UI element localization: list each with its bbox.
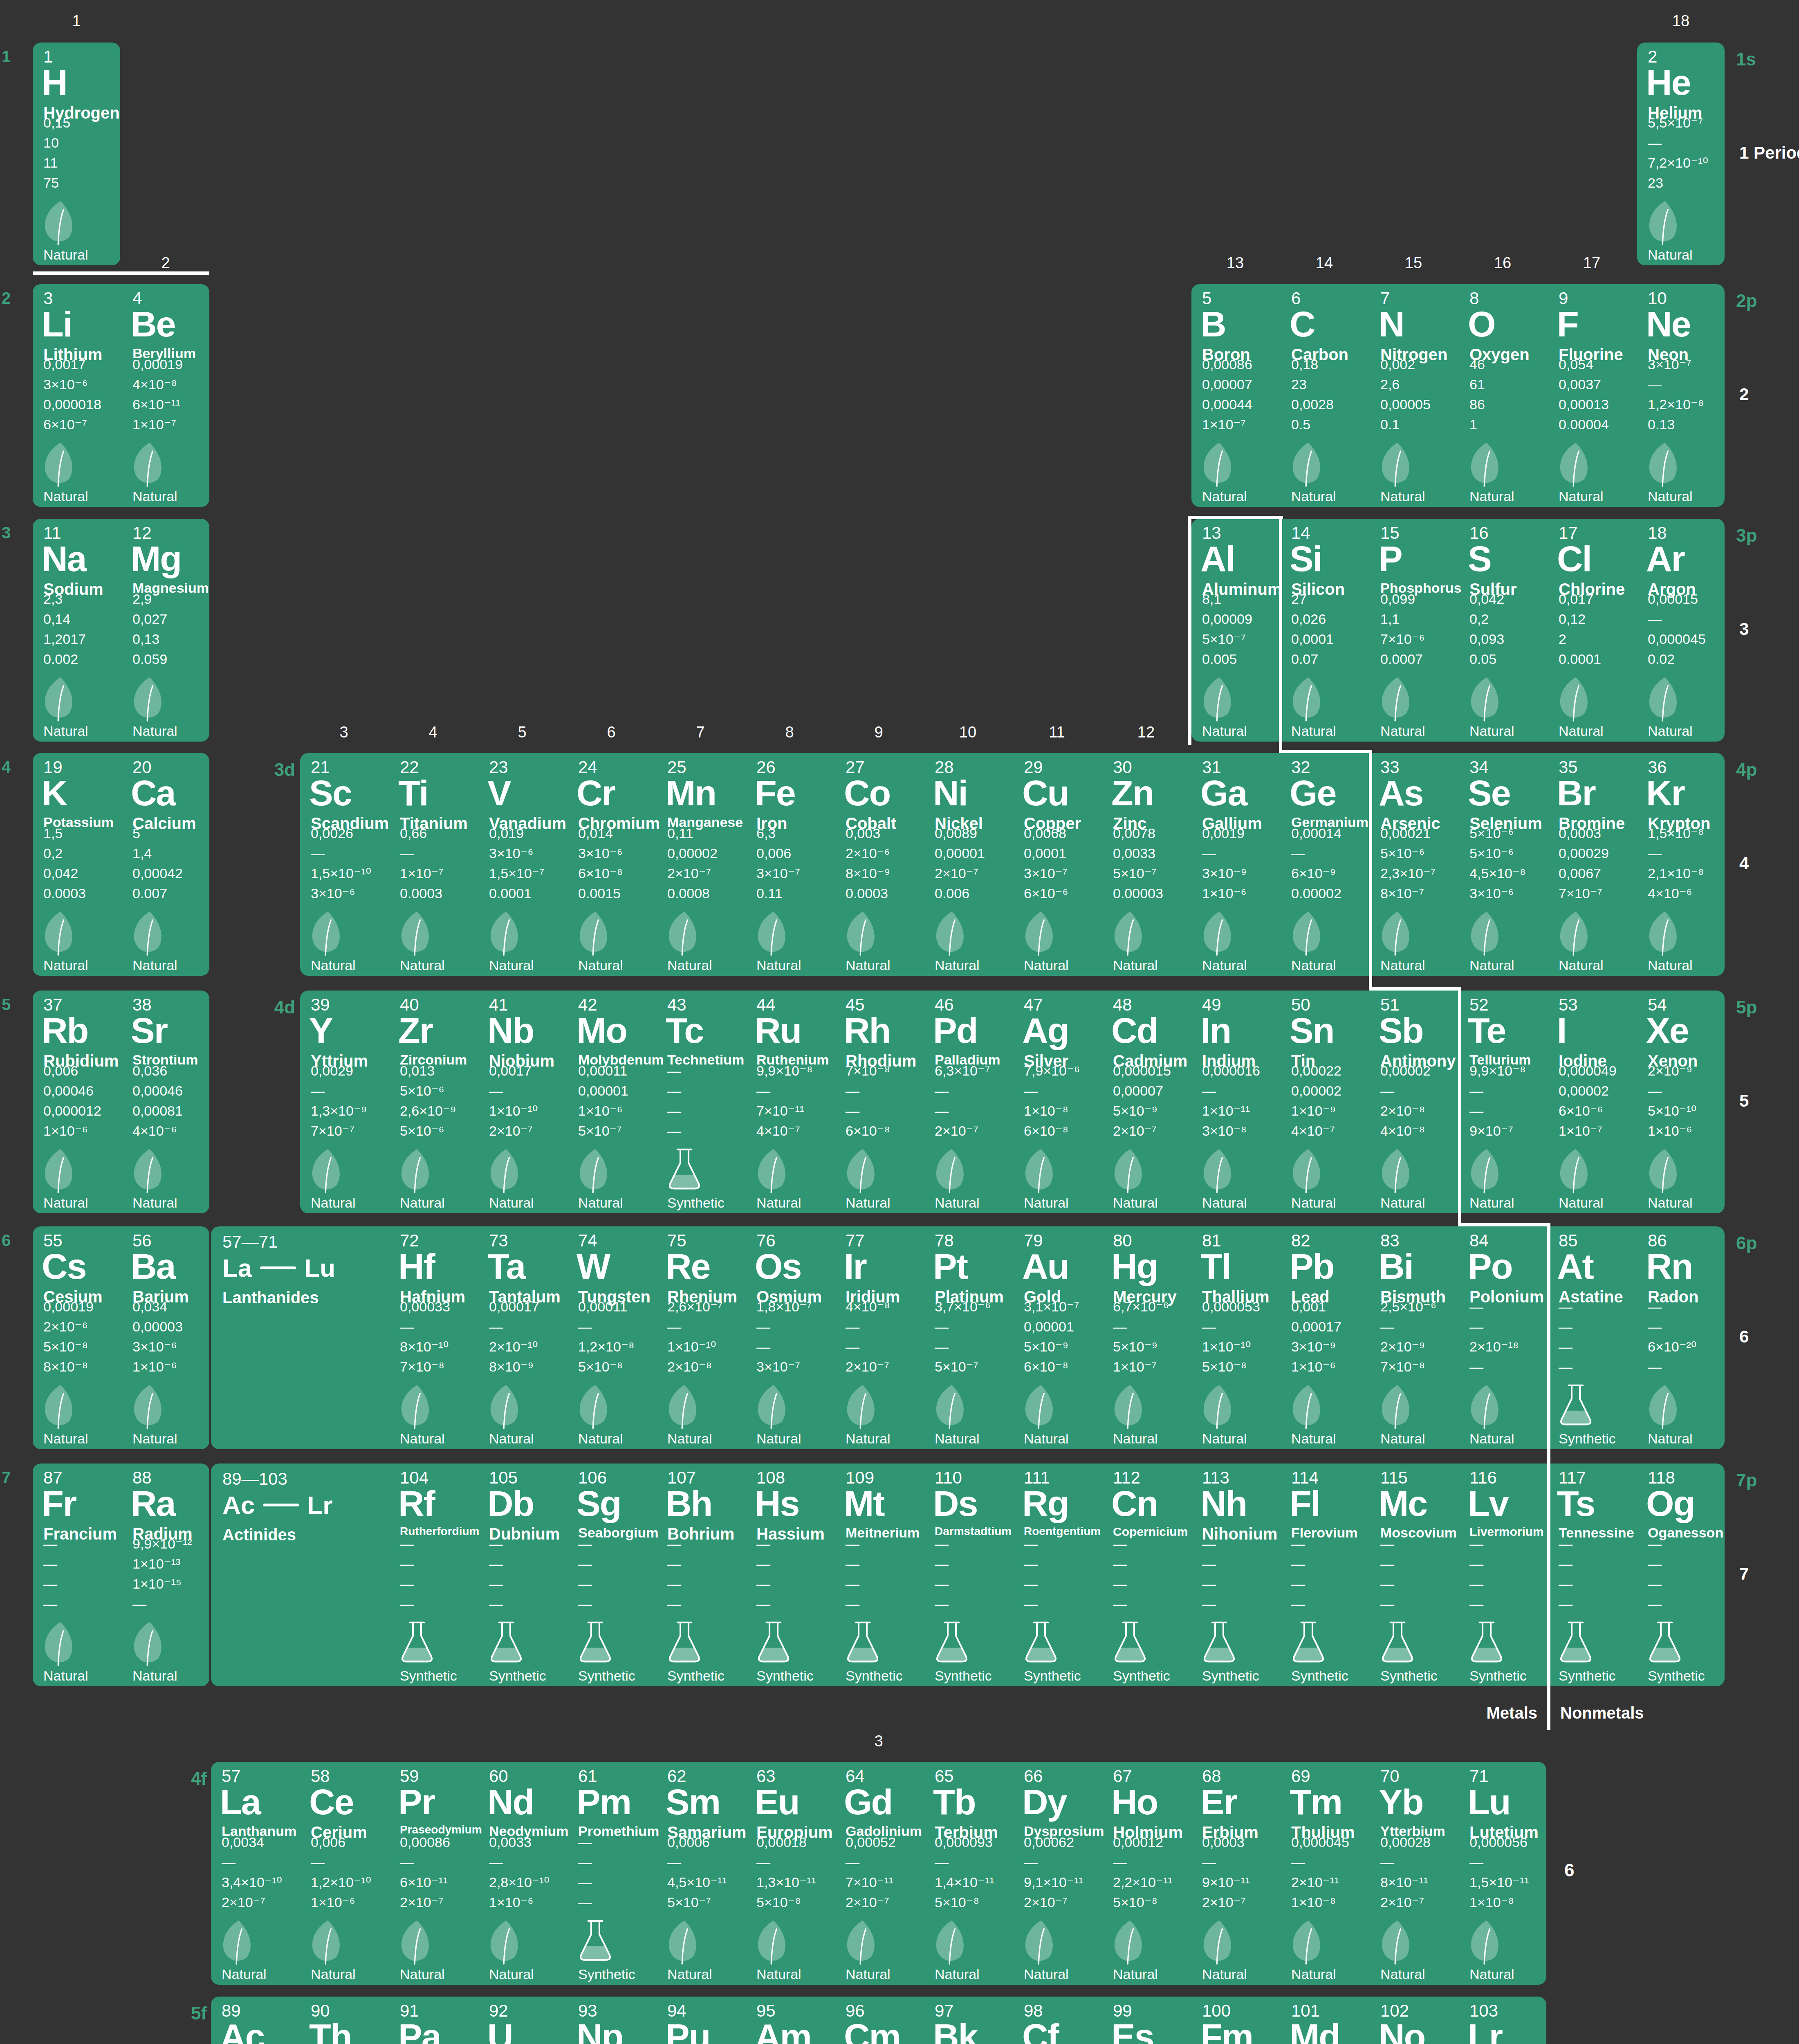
abundance-value: 5×10⁻⁸	[43, 1338, 88, 1355]
flask-icon	[1466, 1620, 1507, 1667]
leaf-icon	[1199, 1918, 1238, 1965]
element-symbol: Ra	[131, 1486, 175, 1522]
origin-label: Natural	[489, 1431, 534, 1447]
abundance-value: 9,1×10⁻¹¹	[1024, 1874, 1083, 1891]
leaf-icon	[40, 675, 79, 722]
leaf-icon	[1555, 440, 1595, 489]
leaf-icon	[1199, 1147, 1238, 1195]
orbital-label: 1s	[1736, 49, 1756, 69]
abundance-value: —	[935, 1318, 949, 1335]
element-cell: 56BaBarium0,0340,000033×10⁻⁶1×10⁻⁶Natura…	[122, 1226, 209, 1449]
leaf-icon	[575, 1147, 614, 1193]
element-symbol: Pt	[933, 1248, 967, 1284]
abundance-value: 2,6×10⁻⁹	[400, 1103, 456, 1119]
leaf-icon	[575, 909, 614, 956]
leaf-icon	[931, 909, 971, 956]
abundance-value: —	[1648, 1318, 1662, 1335]
abundance-value: —	[756, 1338, 770, 1355]
abundance-value: —	[43, 1535, 57, 1552]
element-symbol: He	[1646, 65, 1691, 101]
abundance-value: —	[1202, 845, 1216, 862]
leaf-icon	[129, 675, 168, 723]
abundance-value: 23	[1648, 175, 1663, 191]
element-symbol: Rb	[42, 1013, 88, 1049]
element-symbol: Mn	[666, 775, 716, 811]
element-symbol: Og	[1646, 1486, 1694, 1522]
origin-label: Natural	[935, 1966, 980, 1982]
abundance-value: —	[400, 845, 414, 862]
flask-icon	[1288, 1620, 1329, 1667]
abundance-value: 0,00017	[1291, 1318, 1341, 1335]
abundance-value: 2,3	[43, 591, 63, 607]
origin-label: Natural	[132, 1431, 177, 1447]
element-cell: 37RbRubidium0,0060,000460,0000121×10⁻⁶Na…	[33, 991, 120, 1213]
abundance-value: —	[1202, 1854, 1216, 1871]
abundance-value: 5×10⁻⁹	[1113, 1103, 1157, 1119]
abundance-value: 7,9×10⁻⁶	[1024, 1062, 1080, 1079]
periodic-table-poster: 1HHydrogen0,15101175Natural2HeHelium5,5×…	[0, 0, 1799, 2044]
abundance-value: 0,001	[1291, 1298, 1326, 1315]
abundance-value: 0,000093	[935, 1834, 993, 1851]
origin-label: Natural	[1469, 1966, 1514, 1982]
element-symbol: Hs	[755, 1486, 799, 1522]
abundance-value: 9×10⁻¹¹	[1202, 1874, 1250, 1891]
abundance-value: —	[1024, 1854, 1038, 1871]
abundance-value: 3,7×10⁻⁶	[935, 1298, 991, 1315]
leaf-icon	[1555, 675, 1595, 723]
metal-nonmetal-divider-line	[1279, 516, 1282, 753]
leaf-icon	[1199, 1383, 1238, 1431]
leaf-icon	[664, 1918, 703, 1966]
abundance-value: —	[489, 1535, 503, 1552]
abundance-value: —	[756, 1555, 770, 1572]
element-cell: 76OsOsmium1,8×10⁻⁷——3×10⁻⁷Natural	[746, 1226, 833, 1449]
series-from: La	[222, 1253, 252, 1282]
leaf-icon	[1466, 1383, 1505, 1431]
origin-label: Natural	[132, 723, 177, 739]
abundance-value: —	[1202, 1555, 1216, 1572]
abundance-value: —	[489, 1083, 503, 1099]
element-symbol: U	[487, 2019, 513, 2044]
abundance-value: 1×10⁻⁸	[1291, 1894, 1336, 1911]
leaf-icon	[486, 909, 525, 957]
origin-label: Natural	[578, 957, 623, 973]
abundance-value: —	[1648, 134, 1662, 151]
group-number-label: 17	[1548, 254, 1635, 272]
series-label: Actinides	[222, 1526, 296, 1544]
leaf-icon	[1466, 1147, 1505, 1195]
abundance-value: 0,11	[667, 825, 693, 842]
element-cell: 36KrKrypton1,5×10⁻⁸—2,1×10⁻⁸4×10⁻⁶Natura…	[1637, 753, 1725, 976]
element-cell: 2HeHelium5,5×10⁻⁷—7,2×10⁻¹⁰23Natural	[1637, 43, 1725, 265]
origin-label: Natural	[846, 957, 891, 973]
abundance-value: —	[1291, 1854, 1305, 1871]
abundance-value: —	[1559, 1576, 1572, 1592]
flask-icon	[1555, 1383, 1596, 1430]
abundance-value: 61	[1469, 376, 1485, 393]
abundance-value: 1×10⁻⁶	[1648, 1123, 1692, 1139]
leaf-icon	[1288, 1147, 1327, 1193]
abundance-value: 1×10⁻⁶	[578, 1103, 623, 1119]
abundance-value: 1,5×10⁻¹⁰	[311, 865, 371, 882]
origin-label: Synthetic	[1113, 1668, 1170, 1684]
element-cell: 54XeXenon2×10⁻⁹—5×10⁻¹⁰1×10⁻⁶Natural	[1637, 991, 1725, 1213]
element-cell: 99EsEinsteinium————Synthetic	[1102, 1997, 1190, 2044]
abundance-value: 5×10⁻⁸	[756, 1894, 801, 1911]
abundance-value: 0.007	[132, 885, 167, 902]
origin-label: Natural	[1113, 1195, 1158, 1211]
element-symbol: B	[1200, 306, 1226, 342]
right-period-label: 1 Period	[1739, 143, 1799, 163]
abundance-value: 1,2×10⁻⁸	[578, 1338, 634, 1355]
nonmetals-label: Nonmetals	[1560, 1704, 1644, 1722]
element-symbol: Sr	[131, 1013, 167, 1049]
group-number-label: 2	[122, 254, 209, 272]
abundance-value: —	[1380, 1596, 1394, 1612]
leaf-icon	[753, 1383, 792, 1429]
element-cell: 28NiNickel0,00890,000012×10⁻⁷0.006Natura…	[924, 753, 1012, 976]
leaf-icon	[486, 1147, 525, 1193]
abundance-value: —	[1380, 1318, 1394, 1335]
abundance-value: 23	[1291, 376, 1307, 393]
leaf-icon	[1555, 675, 1595, 722]
leaf-icon	[1644, 1383, 1684, 1431]
element-cell: 55CsCesium0,000192×10⁻⁶5×10⁻⁸8×10⁻⁸Natur…	[33, 1226, 120, 1449]
abundance-value: 1,4	[132, 845, 152, 862]
leaf-icon	[40, 1147, 79, 1193]
abundance-value: 0,036	[132, 1062, 167, 1079]
flask-icon	[1021, 1620, 1061, 1665]
abundance-value: 0,14	[43, 611, 70, 628]
abundance-value: 2×10⁻⁷	[1113, 1123, 1157, 1139]
abundance-value: 0,18	[1291, 356, 1318, 373]
leaf-icon	[486, 1918, 525, 1965]
abundance-value: 0,00021	[1380, 825, 1431, 842]
abundance-value: 2×10⁻⁷	[400, 1894, 444, 1911]
leaf-icon	[129, 440, 168, 489]
origin-label: Synthetic	[1559, 1668, 1616, 1684]
abundance-value: 3×10⁻⁹	[1202, 865, 1247, 882]
metal-nonmetal-divider-line	[33, 271, 209, 275]
element-symbol: Lu	[1468, 1784, 1510, 1820]
abundance-value: 0,0078	[1113, 825, 1155, 842]
metal-nonmetal-divider-line	[1547, 1223, 1550, 1730]
element-symbol: Cm	[844, 2019, 900, 2044]
element-cell: 41NbNiobium0,0017—1×10⁻¹⁰2×10⁻⁷Natural	[478, 991, 566, 1213]
origin-label: Synthetic	[400, 1668, 457, 1684]
abundance-value: —	[311, 1083, 325, 1099]
abundance-value: 5×10⁻⁷	[1202, 631, 1246, 648]
element-symbol: Rf	[398, 1486, 435, 1522]
abundance-value: 0,00086	[1202, 356, 1252, 373]
abundance-value: —	[667, 1555, 681, 1572]
orbital-label: 3p	[1736, 525, 1757, 546]
abundance-value: 2,1×10⁻⁸	[1648, 865, 1704, 882]
abundance-value: 0,00001	[578, 1083, 628, 1099]
origin-label: Natural	[1113, 957, 1158, 973]
metal-nonmetal-divider-line	[1188, 516, 1283, 519]
abundance-value: 0,0017	[43, 356, 86, 373]
abundance-value: 0,00002	[1291, 1083, 1341, 1099]
abundance-value: —	[1469, 1358, 1483, 1375]
leaf-icon	[842, 1383, 882, 1429]
origin-label: Synthetic	[578, 1966, 635, 1982]
abundance-value: —	[43, 1555, 57, 1572]
origin-label: Natural	[935, 1195, 980, 1211]
origin-label: Synthetic	[489, 1668, 546, 1684]
element-cell: 111RgRoentgentium————Synthetic	[1013, 1464, 1101, 1686]
abundance-value: 0,000045	[1648, 631, 1706, 648]
leaf-icon	[129, 909, 168, 957]
flask-icon	[1466, 1620, 1507, 1665]
element-symbol: P	[1379, 541, 1402, 577]
series-placeholder: 57—71LaLuLanthanides	[211, 1226, 388, 1449]
element-cell: 51SbAntimony0,00002—2×10⁻⁸4×10⁻⁸Natural	[1370, 991, 1457, 1213]
element-cell: 73TaTantalum0,00017—2×10⁻¹⁰8×10⁻⁹Natural	[478, 1226, 566, 1449]
abundance-value: 3×10⁻⁸	[1202, 1123, 1247, 1139]
series-label: Lanthanides	[222, 1289, 319, 1307]
abundance-value: —	[578, 1834, 592, 1851]
origin-label: Natural	[1291, 1195, 1336, 1211]
abundance-value: —	[1380, 1576, 1394, 1592]
origin-label: Synthetic	[1469, 1668, 1527, 1684]
abundance-value: 0,00009	[1202, 611, 1252, 628]
element-symbol: Sm	[666, 1784, 720, 1820]
group-number-label: 18	[1637, 12, 1725, 30]
origin-label: Natural	[1291, 723, 1336, 739]
element-symbol: Yb	[1379, 1784, 1423, 1820]
element-symbol: Ag	[1022, 1013, 1068, 1049]
abundance-value: 5×10⁻⁶	[1469, 825, 1514, 842]
leaf-icon	[1288, 440, 1327, 487]
element-cell: 75ReRhenium2,6×10⁻⁷—1×10⁻¹⁰2×10⁻⁸Natural	[657, 1226, 744, 1449]
leaf-icon	[1199, 1147, 1238, 1193]
leaf-icon	[397, 1383, 436, 1429]
origin-label: Synthetic	[756, 1668, 814, 1684]
abundance-value: 0,0006	[667, 1834, 710, 1851]
abundance-value: —	[1202, 1318, 1216, 1335]
element-cell: 63EuEuropium0,00018—1,3×10⁻¹¹5×10⁻⁸Natur…	[746, 1762, 833, 1985]
element-symbol: Pa	[398, 2019, 441, 2044]
abundance-value: 5×10⁻⁶	[400, 1083, 444, 1099]
abundance-value: —	[756, 1596, 770, 1612]
element-symbol: Co	[844, 775, 890, 811]
abundance-value: —	[935, 1854, 949, 1871]
element-symbol: Ru	[755, 1013, 801, 1049]
leaf-icon	[1021, 1383, 1060, 1431]
abundance-value: 1×10⁻⁶	[1202, 885, 1247, 902]
element-cell: 50SnTin0,000220,000021×10⁻⁹4×10⁻⁷Natural	[1281, 991, 1368, 1213]
element-symbol: Ti	[398, 775, 428, 811]
abundance-value: —	[1648, 1596, 1662, 1612]
flask-icon	[1377, 1620, 1418, 1667]
element-symbol: Sc	[309, 775, 352, 811]
origin-label: Natural	[578, 1195, 623, 1211]
origin-label: Natural	[1380, 957, 1425, 973]
origin-label: Synthetic	[935, 1668, 992, 1684]
abundance-value: 5×10⁻⁷	[578, 1123, 622, 1139]
leaf-icon	[1466, 909, 1505, 957]
leaf-icon	[664, 909, 703, 957]
element-cell: 5BBoron0,000860,000070,000441×10⁻⁷Natura…	[1191, 284, 1279, 507]
abundance-value: 2×10⁻⁷	[1024, 1894, 1068, 1911]
abundance-value: 1×10⁻⁷	[132, 416, 176, 433]
element-symbol: Ba	[131, 1248, 175, 1284]
abundance-value: 0,017	[1559, 591, 1593, 607]
abundance-value: 6,3×10⁻⁷	[935, 1062, 990, 1079]
abundance-value: 0,00062	[1024, 1834, 1074, 1851]
origin-label: Natural	[1380, 1195, 1425, 1211]
leaf-icon	[575, 1383, 614, 1431]
element-cell: 94PuPlutonium————Synthetic	[657, 1997, 744, 2044]
element-symbol: C	[1290, 306, 1315, 342]
abundance-value: 0,014	[578, 825, 613, 842]
element-symbol: W	[576, 1248, 610, 1284]
element-cell: 74WTungsten0,00011—1,2×10⁻⁸5×10⁻⁸Natural	[568, 1226, 655, 1449]
abundance-value: —	[1559, 1358, 1572, 1375]
element-cell: 12MgMagnesium2,90,0270,130.059Natural	[122, 519, 209, 742]
series-range: 89—103	[222, 1469, 287, 1489]
abundance-value: —	[489, 1576, 503, 1592]
orbital-label: 2p	[1736, 291, 1757, 311]
abundance-value: 2,2×10⁻¹¹	[1113, 1874, 1173, 1891]
element-symbol: Na	[42, 541, 86, 577]
abundance-value: 0,006	[43, 1062, 78, 1079]
abundance-value: 5×10⁻⁸	[935, 1894, 979, 1911]
leaf-icon	[1288, 440, 1327, 489]
origin-label: Natural	[1291, 489, 1336, 504]
abundance-value: 3×10⁻⁶	[578, 845, 623, 862]
abundance-value: 0,0017	[489, 1062, 532, 1079]
orbital-label: 7p	[1736, 1470, 1757, 1490]
abundance-value: 0.0001	[1559, 651, 1601, 668]
element-cell: 60NdNeodymium0,0033—2,8×10⁻¹⁰1×10⁻⁶Natur…	[478, 1762, 566, 1985]
abundance-value: 10	[43, 134, 59, 151]
element-symbol: Tc	[666, 1013, 703, 1049]
abundance-value: 0,099	[1380, 591, 1415, 607]
origin-label: Natural	[1024, 957, 1069, 973]
leaf-icon	[842, 1383, 882, 1431]
element-cell: 89AcActinium————Natural	[211, 1997, 298, 2044]
leaf-icon	[842, 909, 882, 956]
element-cell: 52TeTellurium9,9×10⁻⁸——9×10⁻⁷Natural	[1459, 991, 1546, 1213]
abundance-value: —	[222, 1854, 236, 1871]
abundance-value: 1,5×10⁻¹¹	[1469, 1874, 1529, 1891]
abundance-value: 4,5×10⁻¹¹	[667, 1874, 727, 1891]
abundance-value: —	[667, 1103, 681, 1119]
leaf-icon	[40, 909, 79, 956]
abundance-value: 9×10⁻⁷	[1469, 1123, 1513, 1139]
origin-label: Natural	[846, 1966, 891, 1982]
origin-label: Natural	[1202, 1966, 1247, 1982]
right-period-label: 5	[1739, 1091, 1749, 1111]
element-cell: 24CrChromium0,0143×10⁻⁶6×10⁻⁸0.0015Natur…	[568, 753, 655, 976]
abundance-value: 0,0001	[1024, 845, 1066, 862]
origin-label: Natural	[1380, 489, 1425, 504]
abundance-value: 0,0068	[1024, 825, 1066, 842]
origin-label: Natural	[1380, 723, 1425, 739]
origin-label: Natural	[667, 1966, 712, 1982]
abundance-value: 0,013	[400, 1062, 435, 1079]
leaf-icon	[753, 1918, 792, 1966]
element-cell: 68ErErbium0,0003—9×10⁻¹¹2×10⁻⁷Natural	[1191, 1762, 1279, 1985]
element-symbol: Cf	[1022, 2019, 1059, 2044]
abundance-value: 0,034	[132, 1298, 167, 1315]
element-cell: 115McMoscovium————Synthetic	[1370, 1464, 1457, 1686]
abundance-value: —	[1380, 1854, 1394, 1871]
leaf-icon	[40, 1383, 79, 1429]
abundance-value: 0.5	[1291, 416, 1310, 433]
leaf-icon	[307, 909, 347, 956]
group-number-label: 6	[568, 724, 655, 741]
origin-label: Natural	[43, 957, 88, 973]
element-cell: 72HfHafnium0,00033—8×10⁻¹⁰7×10⁻⁸Natural	[389, 1226, 477, 1449]
origin-label: Natural	[1469, 489, 1514, 504]
abundance-value: —	[400, 1576, 414, 1592]
origin-label: Natural	[578, 1431, 623, 1447]
abundance-value: —	[1380, 1083, 1394, 1099]
leaf-icon	[842, 909, 882, 957]
origin-label: Natural	[1024, 1966, 1069, 1982]
abundance-value: 11	[43, 155, 58, 171]
abundance-value: —	[1559, 1555, 1572, 1572]
abundance-value: 5×10⁻⁹	[1113, 1338, 1157, 1355]
element-symbol: V	[487, 775, 511, 811]
element-symbol: Ge	[1290, 775, 1336, 811]
element-symbol: Ac	[220, 2019, 265, 2044]
element-symbol: Te	[1468, 1013, 1505, 1049]
abundance-value: 2×10⁻⁷	[1202, 1894, 1246, 1911]
abundance-value: 75	[43, 175, 59, 191]
element-cell: 8OOxygen4661861Natural	[1459, 284, 1546, 507]
abundance-value: —	[935, 1535, 949, 1552]
abundance-value: 2,9	[132, 591, 152, 607]
element-cell: 23VVanadium0,0193×10⁻⁶1,5×10⁻⁷0.0001Natu…	[478, 753, 566, 976]
element-symbol: Mo	[576, 1013, 627, 1049]
abundance-value: —	[489, 1596, 503, 1612]
abundance-value: —	[1291, 1576, 1305, 1592]
abundance-value: 3×10⁻⁶	[132, 1338, 177, 1355]
abundance-value: 0,003	[846, 825, 880, 842]
abundance-value: —	[1380, 1555, 1394, 1572]
series-from: Ac	[222, 1490, 255, 1520]
abundance-value: 5×10⁻⁸	[578, 1358, 623, 1375]
element-symbol: Bi	[1379, 1248, 1413, 1284]
origin-label: Natural	[756, 1431, 801, 1447]
element-cell: 71LuLutetium0,000056—1,5×10⁻¹¹1×10⁻⁸Natu…	[1459, 1762, 1546, 1985]
abundance-value: 1×10⁻⁷	[400, 865, 444, 882]
abundance-value: 2×10⁻¹¹	[1291, 1874, 1339, 1891]
leaf-icon	[1466, 909, 1505, 956]
leaf-icon	[1199, 1918, 1238, 1966]
abundance-value: —	[578, 1576, 592, 1592]
origin-label: Natural	[756, 957, 801, 973]
element-cell: 64GdGadolinium0,00052—7×10⁻¹¹2×10⁻⁷Natur…	[835, 1762, 922, 1985]
element-symbol: Os	[755, 1248, 801, 1284]
abundance-value: 1,2×10⁻¹⁰	[311, 1874, 371, 1891]
leaf-icon	[931, 1918, 971, 1965]
abundance-value: —	[489, 1854, 503, 1871]
abundance-value: —	[1559, 1298, 1572, 1315]
abundance-value: —	[1291, 1555, 1305, 1572]
element-symbol: As	[1379, 775, 1423, 811]
flask-icon	[1199, 1620, 1240, 1665]
leaf-icon	[307, 1147, 347, 1193]
orbital-label: 6p	[1736, 1233, 1757, 1253]
abundance-value: 1,5	[43, 825, 63, 842]
flask-icon	[664, 1620, 705, 1665]
leaf-icon	[1466, 440, 1505, 487]
